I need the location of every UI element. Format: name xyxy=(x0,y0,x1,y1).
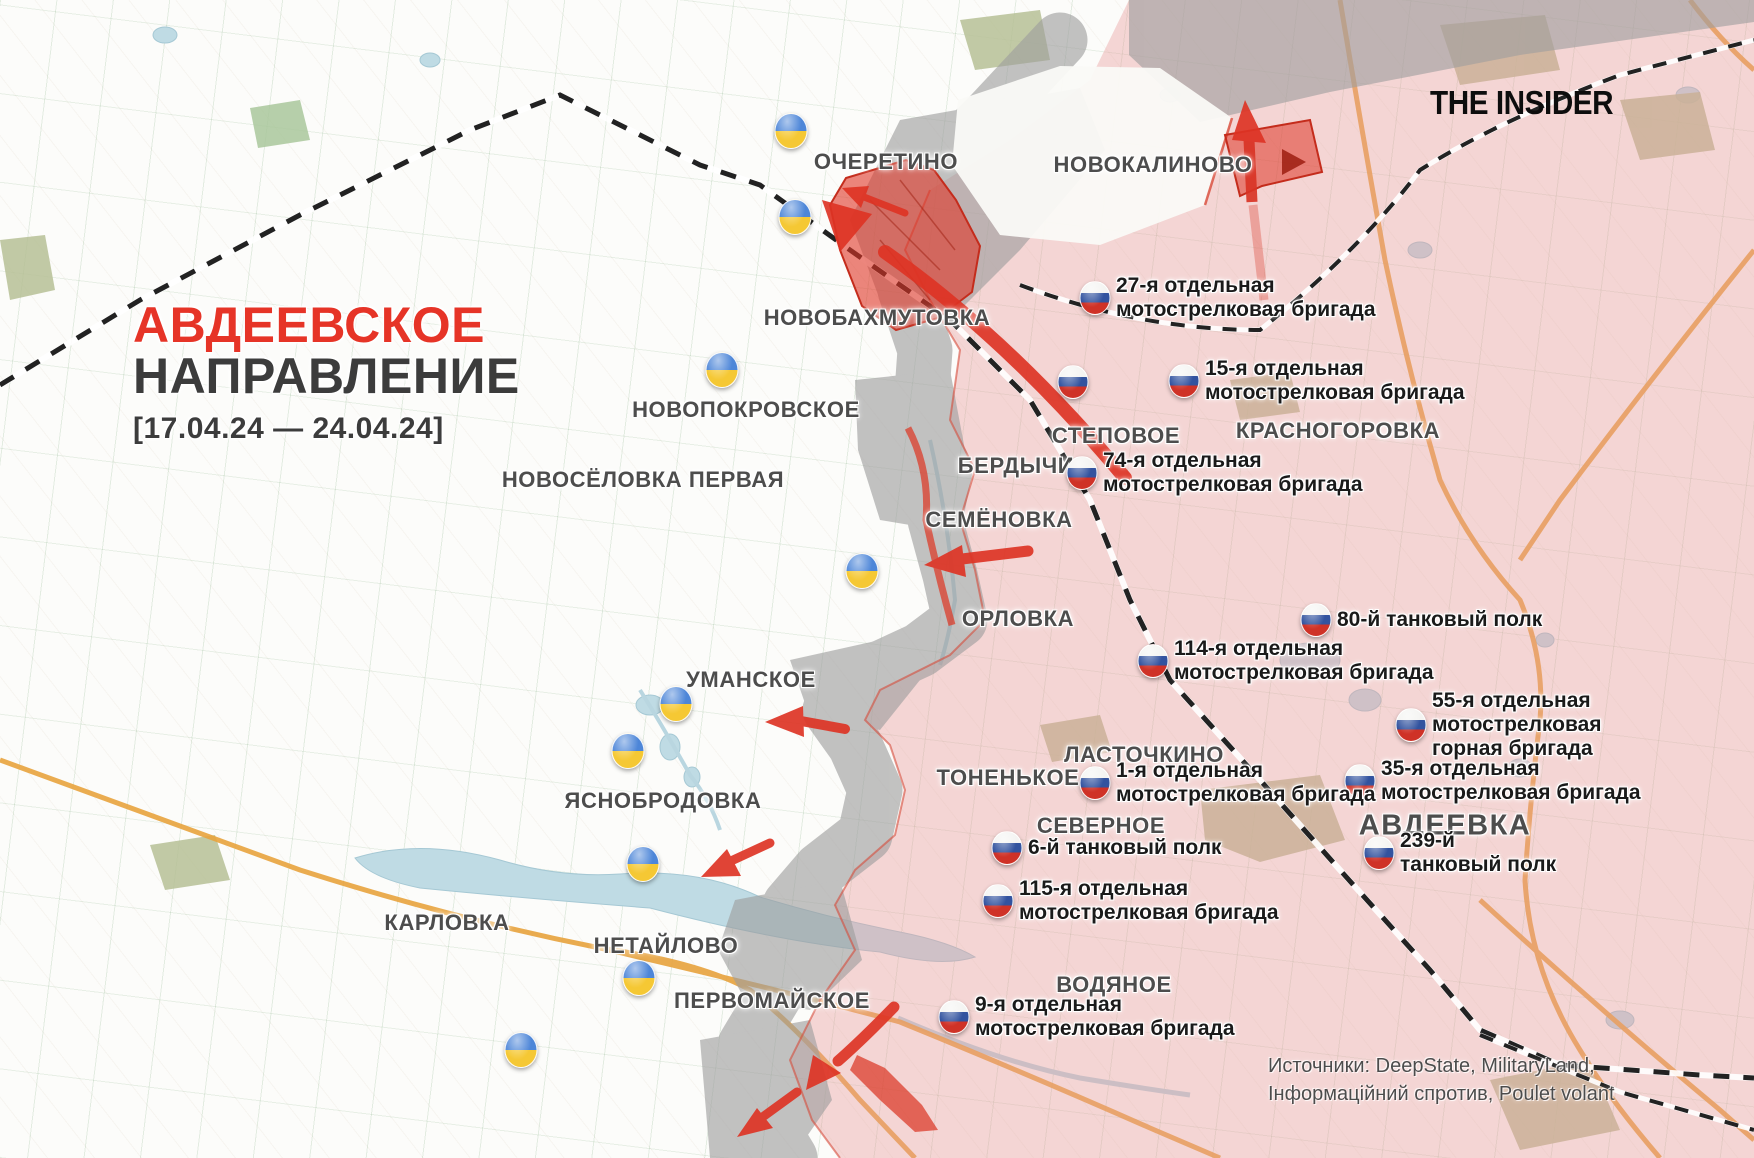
ru-flag-icon xyxy=(1067,456,1098,490)
unit-label-ru-114: 114-я отдельнаямотострелковая бригада xyxy=(1174,637,1434,685)
town-label-1: ОЧЕРЕТИНО xyxy=(814,149,958,175)
unit-label-line: 80-й танковый полк xyxy=(1337,608,1542,632)
town-label-11: УМАНСКОЕ xyxy=(686,667,816,693)
town-label-14: ЯСНОБРОДОВКА xyxy=(565,788,762,814)
ru-flag-icon xyxy=(1169,364,1200,398)
unit-label-ru-115: 115-я отдельнаямотострелковая бригада xyxy=(1019,877,1279,925)
town-label-4: НОВОПОКРОВСКОЕ xyxy=(632,397,860,423)
unit-label-line: мотострелковая бригада xyxy=(1116,298,1376,322)
ru-flag-icon xyxy=(1058,365,1089,399)
town-label-7: СТЕПОВОЕ xyxy=(1052,423,1180,449)
ru-flag-icon xyxy=(939,1000,970,1034)
page-title-red: АВДЕЕВСКОЕ xyxy=(133,300,520,350)
ua-flag-icon xyxy=(706,352,739,388)
the-insider-logo: THE INSIDER xyxy=(1430,84,1613,122)
unit-label-ru-55: 55-я отдельнаямотострелковаягорная брига… xyxy=(1432,689,1602,761)
town-label-3: НОВОБАХМУТОВКА xyxy=(764,305,991,331)
unit-label-ru-15: 15-я отдельнаямотострелковая бригада xyxy=(1205,357,1465,405)
unit-label-line: 114-я отдельная xyxy=(1174,637,1434,661)
unit-label-ru-9: 9-я отдельнаямотострелковая бригада xyxy=(975,993,1235,1041)
unit-label-line: мотострелковая бригада xyxy=(1174,661,1434,685)
unit-label-ru-74: 74-я отдельнаямотострелковая бригада xyxy=(1103,449,1363,497)
unit-label-line: мотострелковая бригада xyxy=(1019,901,1279,925)
ru-flag-icon xyxy=(1080,281,1111,315)
labels-layer: ОЧЕРЕТИНОНОВОКАЛИНОВОНОВОБАХМУТОВКАНОВОП… xyxy=(0,0,1754,1158)
page-title-dark: НАПРАВЛЕНИЕ xyxy=(133,350,520,402)
town-label-18: НЕТАЙЛОВО xyxy=(594,933,739,959)
unit-label-line: 35-я отдельная xyxy=(1381,757,1641,781)
town-label-6: КРАСНОГОРОВКА xyxy=(1236,418,1440,444)
unit-label-line: 9-я отдельная xyxy=(975,993,1235,1017)
ua-flag-icon xyxy=(846,553,879,589)
ru-flag-icon xyxy=(1396,708,1427,742)
unit-label-line: мотострелковая бригада xyxy=(975,1017,1235,1041)
ru-flag-icon xyxy=(1138,644,1169,678)
town-label-9: СЕМЁНОВКА xyxy=(925,507,1072,533)
unit-label-line: 1-я отдельная xyxy=(1116,759,1376,783)
unit-label-ru-35: 35-я отдельнаямотострелковая бригада xyxy=(1381,757,1641,805)
town-label-17: КАРЛОВКА xyxy=(384,910,509,936)
unit-label-line: мотострелковая бригада xyxy=(1103,473,1363,497)
unit-label-ru-239: 239-йтанковый полк xyxy=(1400,829,1556,877)
ru-flag-icon xyxy=(983,884,1014,918)
unit-label-line: 239-й xyxy=(1400,829,1556,853)
sources-line-1: Источники: DeepState, MilitaryLand, xyxy=(1268,1052,1615,1080)
ru-flag-icon xyxy=(1080,766,1111,800)
ua-flag-icon xyxy=(660,686,693,722)
ru-flag-icon xyxy=(992,831,1023,865)
unit-label-ru-27: 27-я отдельнаямотострелковая бригада xyxy=(1116,274,1376,322)
town-label-8: БЕРДЫЧИ xyxy=(958,453,1074,479)
town-label-2: НОВОКАЛИНОВО xyxy=(1054,152,1253,178)
unit-label-line: мотострелковая бригада xyxy=(1381,781,1641,805)
ua-flag-icon xyxy=(623,960,656,996)
unit-label-line: 15-я отдельная xyxy=(1205,357,1465,381)
ua-flag-icon xyxy=(779,199,812,235)
unit-label-line: мотострелковая бригада xyxy=(1116,783,1376,807)
sources-note: Источники: DeepState, MilitaryLand, Інфо… xyxy=(1268,1052,1615,1108)
unit-label-line: 55-я отдельная xyxy=(1432,689,1602,713)
unit-label-line: мотострелковая бригада xyxy=(1205,381,1465,405)
ua-flag-icon xyxy=(612,733,645,769)
unit-label-line: 74-я отдельная xyxy=(1103,449,1363,473)
town-label-10: ОРЛОВКА xyxy=(962,606,1074,632)
unit-label-ru-1: 1-я отдельнаямотострелковая бригада xyxy=(1116,759,1376,807)
town-label-13: ТОНЕНЬКОЕ xyxy=(937,765,1080,791)
unit-label-line: мотострелковая xyxy=(1432,713,1602,737)
map-canvas: ОЧЕРЕТИНОНОВОКАЛИНОВОНОВОБАХМУТОВКАНОВОП… xyxy=(0,0,1754,1158)
unit-label-line: 27-я отдельная xyxy=(1116,274,1376,298)
ua-flag-icon xyxy=(627,846,660,882)
ru-flag-icon xyxy=(1364,836,1395,870)
unit-label-line: 6-й танковый полк xyxy=(1028,836,1222,860)
unit-label-line: 115-я отдельная xyxy=(1019,877,1279,901)
ru-flag-icon xyxy=(1301,603,1332,637)
unit-label-ru-80: 80-й танковый полк xyxy=(1337,608,1542,632)
unit-label-ru-6: 6-й танковый полк xyxy=(1028,836,1222,860)
town-label-5: НОВОСЁЛОВКА ПЕРВАЯ xyxy=(502,467,784,493)
map-title-block: АВДЕЕВСКОЕ НАПРАВЛЕНИЕ [17.04.24 — 24.04… xyxy=(133,300,520,446)
ua-flag-icon xyxy=(505,1032,538,1068)
date-range: [17.04.24 — 24.04.24] xyxy=(133,412,520,446)
town-label-19: ПЕРВОМАЙСКОЕ xyxy=(674,988,870,1014)
ua-flag-icon xyxy=(775,113,808,149)
sources-line-2: Інформаційний спротив, Poulet volant xyxy=(1268,1080,1615,1108)
unit-label-line: танковый полк xyxy=(1400,853,1556,877)
